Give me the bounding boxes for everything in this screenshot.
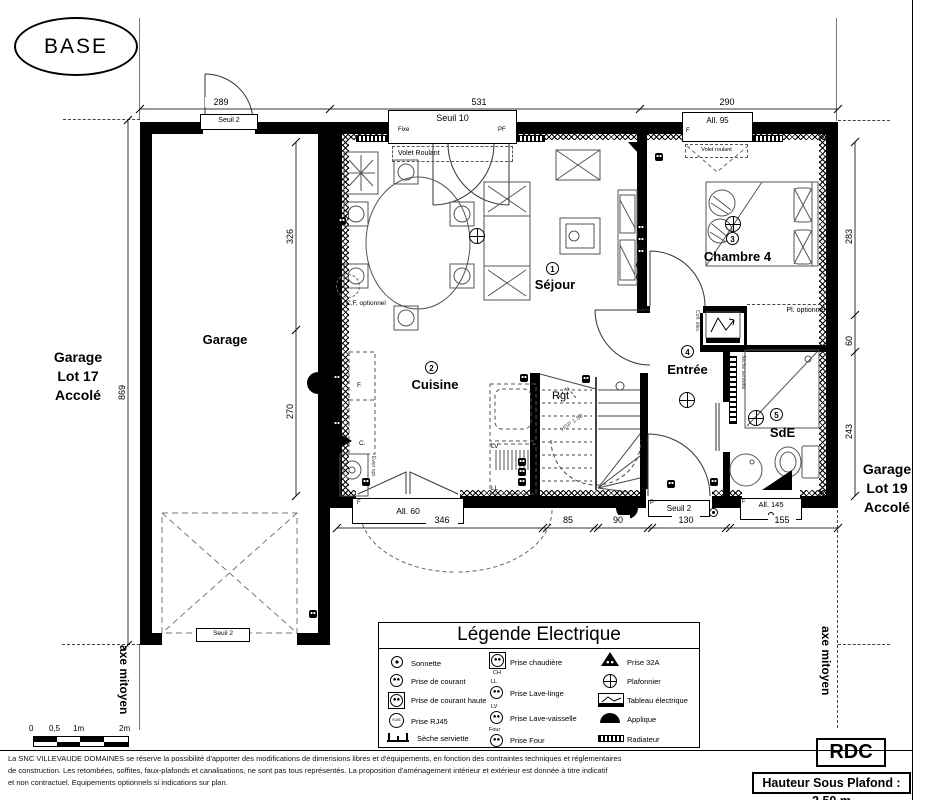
entry-seuil-label: Seuil 2 bbox=[648, 504, 710, 513]
corner-wedge bbox=[762, 470, 792, 490]
neighbor-right-l2: Lot 19 bbox=[854, 479, 920, 498]
electrical-cabinet bbox=[706, 312, 740, 343]
dim-top-chambre: 290 bbox=[711, 97, 743, 107]
dishwasher-label: LV bbox=[491, 443, 498, 450]
room-number-sejour: 1 bbox=[546, 262, 559, 275]
room-label-garage: Garage bbox=[185, 332, 265, 347]
power-socket-icon bbox=[710, 478, 718, 486]
washer-label: LL bbox=[491, 485, 498, 492]
legend-item-tag: Four bbox=[489, 727, 500, 733]
power-socket-icon bbox=[390, 674, 403, 687]
neighbor-left-l1: Garage bbox=[40, 348, 116, 367]
dim-inner-lower: 270 bbox=[285, 385, 295, 419]
kitchen-window-f-tag: F bbox=[357, 500, 361, 506]
ceiling-light-icon bbox=[603, 674, 617, 688]
dim-bottom-5: 155 bbox=[768, 515, 796, 525]
legend-item-label: Prise Four bbox=[510, 736, 545, 745]
room-number-chambre: 3 bbox=[726, 232, 739, 245]
dim-inner-upper: 326 bbox=[285, 210, 295, 244]
bay-volet-label: Volet Roulant bbox=[398, 150, 440, 157]
ceiling-light-icon bbox=[469, 228, 485, 244]
rj45-socket-icon bbox=[636, 261, 644, 269]
power-socket-icon bbox=[637, 248, 645, 256]
legend-item-label: Radiateur bbox=[627, 735, 660, 744]
disclaimer-block: La SNC VILLEVAUDE DOMAINES se réserve la… bbox=[8, 753, 738, 789]
power-socket-icon bbox=[518, 468, 526, 476]
kitchen-counter bbox=[349, 352, 375, 454]
ceiling-light-icon bbox=[679, 392, 695, 408]
room-label-sejour: Séjour bbox=[515, 277, 595, 292]
scalebar bbox=[33, 736, 129, 747]
sink-optional-label: Évier opt. bbox=[369, 456, 376, 494]
toilet-tank bbox=[802, 446, 819, 478]
disclaimer-line-2: de construction. Les retombées, soffites… bbox=[8, 765, 738, 777]
dim-top-garage: 289 bbox=[205, 97, 237, 107]
dimension-ticks bbox=[124, 105, 859, 649]
rgt-label: Rgt bbox=[552, 390, 569, 402]
power-socket-icon bbox=[518, 478, 526, 486]
scalebar-tick-1m: 1m bbox=[73, 724, 84, 733]
scalebar-row2 bbox=[34, 742, 128, 747]
dim-bottom-4: 130 bbox=[672, 515, 700, 525]
radiator-icon bbox=[356, 135, 388, 142]
legend-title: Légende Electrique bbox=[379, 624, 699, 649]
scalebar-tick-05: 0,5 bbox=[49, 724, 60, 733]
room-label-cuisine: Cuisine bbox=[400, 377, 470, 392]
room-label-entree: Entrée bbox=[650, 362, 725, 377]
neighbor-right-l3: Accolé bbox=[854, 498, 920, 517]
power-socket-icon bbox=[520, 374, 528, 382]
legend-item-label: Prise de courant bbox=[411, 677, 466, 686]
dim-right-lower: 243 bbox=[844, 405, 854, 439]
cf-optional-circle bbox=[336, 274, 360, 298]
ceiling-light-icon bbox=[748, 410, 764, 426]
legend-item-label: Prise Lave-linge bbox=[510, 689, 564, 698]
power-socket-icon bbox=[637, 224, 645, 232]
radiator-icon bbox=[598, 735, 624, 742]
towel-radiator-icon bbox=[387, 733, 409, 742]
legend-item-tag: CH bbox=[493, 670, 501, 676]
room-number-entree: 4 bbox=[681, 345, 694, 358]
legend-item-label: Prise de courant haute bbox=[411, 696, 486, 705]
rj45-icon: RJ45 bbox=[389, 713, 404, 728]
dishwasher-zone bbox=[490, 384, 536, 441]
neighbor-left-l2: Lot 17 bbox=[40, 367, 116, 386]
dim-left-garage: 869 bbox=[117, 360, 127, 400]
legend-item-label: Tableau électrique bbox=[627, 696, 688, 705]
bay-fixe-tag: Fixe bbox=[398, 127, 409, 133]
chambre-window-f-tag: F bbox=[686, 128, 690, 134]
axe-mitoyen-left: axe mitoyen bbox=[117, 645, 131, 731]
legend-item-tag: LV bbox=[491, 704, 497, 710]
washbasin bbox=[730, 454, 762, 486]
room-label-sde: SdE bbox=[760, 425, 805, 440]
sde-window-f-tag: F bbox=[742, 499, 745, 505]
boiler-socket-icon bbox=[489, 652, 506, 669]
room-number-cuisine: 2 bbox=[425, 361, 438, 374]
garage-door-zone bbox=[162, 513, 297, 633]
floor-badge: RDC bbox=[816, 738, 886, 767]
disclaimer-line-1: La SNC VILLEVAUDE DOMAINES se réserve la… bbox=[8, 753, 738, 765]
neighbor-left-l3: Accolé bbox=[40, 386, 116, 405]
power-socket-icon bbox=[309, 610, 317, 618]
dishwasher-socket-icon bbox=[490, 711, 503, 724]
axe-mitoyen-right: axe mitoyen bbox=[819, 626, 833, 718]
towel-radiator-label: Sèche serviette bbox=[739, 355, 746, 419]
disclaimer-line-3: et non contractuel. Equipements optionne… bbox=[8, 777, 738, 789]
room-number-sde: 5 bbox=[770, 408, 783, 421]
power-socket-icon bbox=[582, 375, 590, 383]
neighbor-left-block: Garage Lot 17 Accolé bbox=[40, 348, 116, 405]
dim-right-mid: 60 bbox=[844, 324, 854, 346]
wall-light-icon bbox=[600, 713, 620, 723]
room-label-chambre: Chambre 4 bbox=[695, 249, 780, 264]
power-socket-icon bbox=[637, 236, 645, 244]
legend-item-label: Plafonnier bbox=[627, 677, 661, 686]
placard-optional-label: Pl. optionnel bbox=[745, 307, 825, 314]
sde-window-label: All. 145 bbox=[740, 500, 802, 509]
rj45-socket-icon bbox=[636, 273, 644, 281]
tall-unit bbox=[618, 190, 637, 285]
cooker-label: C. bbox=[359, 440, 366, 447]
legend-item-label: Prise 32A bbox=[627, 658, 660, 667]
washer-socket-icon bbox=[490, 686, 503, 699]
scalebar-tick-0: 0 bbox=[29, 724, 33, 733]
power-socket-icon bbox=[667, 480, 675, 488]
power-socket-icon bbox=[333, 420, 341, 428]
legend-item-label: Applique bbox=[627, 715, 656, 724]
coffret-label: Coff. élec. bbox=[693, 310, 700, 344]
legend-item-tag: LL bbox=[491, 679, 497, 685]
radiator-icon bbox=[517, 135, 545, 142]
high-socket-icon bbox=[388, 692, 405, 709]
floor-plan: Seuil 2 Seuil 10 Fixe PF Volet Roulant A… bbox=[0, 0, 927, 800]
power-socket-icon bbox=[338, 217, 346, 225]
entry-p-tag: P bbox=[650, 500, 654, 506]
dim-bottom-3: 90 bbox=[606, 515, 630, 525]
base-bubble: BASE bbox=[14, 17, 138, 76]
legend-item-label: Prise Lave-vaisselle bbox=[510, 714, 577, 723]
power-socket-icon bbox=[518, 458, 526, 466]
fridge-label: F. bbox=[357, 382, 362, 389]
dim-right-upper: 283 bbox=[844, 210, 854, 244]
dim-bottom-2: 85 bbox=[556, 515, 580, 525]
chambre-window-label: All. 95 bbox=[682, 116, 753, 125]
sonnette-icon bbox=[391, 656, 403, 668]
ceiling-light-icon bbox=[725, 216, 741, 232]
oven-socket-icon bbox=[490, 734, 503, 747]
scalebar-tick-2m: 2m bbox=[119, 724, 130, 733]
garage-entry-seuil-label: Seuil 2 bbox=[200, 117, 258, 124]
cf-optional-label: C,F, optionnel bbox=[322, 300, 410, 307]
chambre-volet-label: Volet roulant bbox=[685, 147, 748, 153]
radiator-icon bbox=[753, 135, 783, 142]
bay-window-label: Seuil 10 bbox=[388, 113, 517, 123]
dim-top-sejour: 531 bbox=[463, 97, 495, 107]
neighbor-right-l1: Garage bbox=[854, 460, 920, 479]
legend-item-label: Sèche serviette bbox=[417, 734, 469, 743]
legend-item-label: Prise chaudière bbox=[510, 658, 562, 667]
power-socket-icon bbox=[333, 374, 341, 382]
doorbell-icon bbox=[709, 508, 718, 517]
dim-bottom-1: 346 bbox=[426, 515, 458, 525]
legend-item-label: Prise RJ45 bbox=[411, 717, 448, 726]
socket-32a-icon bbox=[601, 652, 619, 666]
legend-item-label: Sonnette bbox=[411, 659, 441, 668]
towel-radiator-icon bbox=[729, 356, 737, 424]
power-socket-icon bbox=[655, 153, 663, 161]
electrical-panel-icon bbox=[598, 693, 624, 707]
garage-door-seuil-label: Seuil 2 bbox=[196, 630, 250, 637]
bay-pf-tag: PF bbox=[498, 127, 506, 133]
neighbor-right-block: Garage Lot 19 Accolé bbox=[854, 460, 920, 517]
base-label: BASE bbox=[44, 35, 108, 58]
floor-label: RDC bbox=[829, 741, 872, 763]
legend-box: Légende Electrique Sonnette Prise de cou… bbox=[378, 622, 700, 748]
dining-table bbox=[366, 177, 470, 309]
ceiling-height-badge: Hauteur Sous Plafond : 2.50 m bbox=[752, 772, 911, 794]
